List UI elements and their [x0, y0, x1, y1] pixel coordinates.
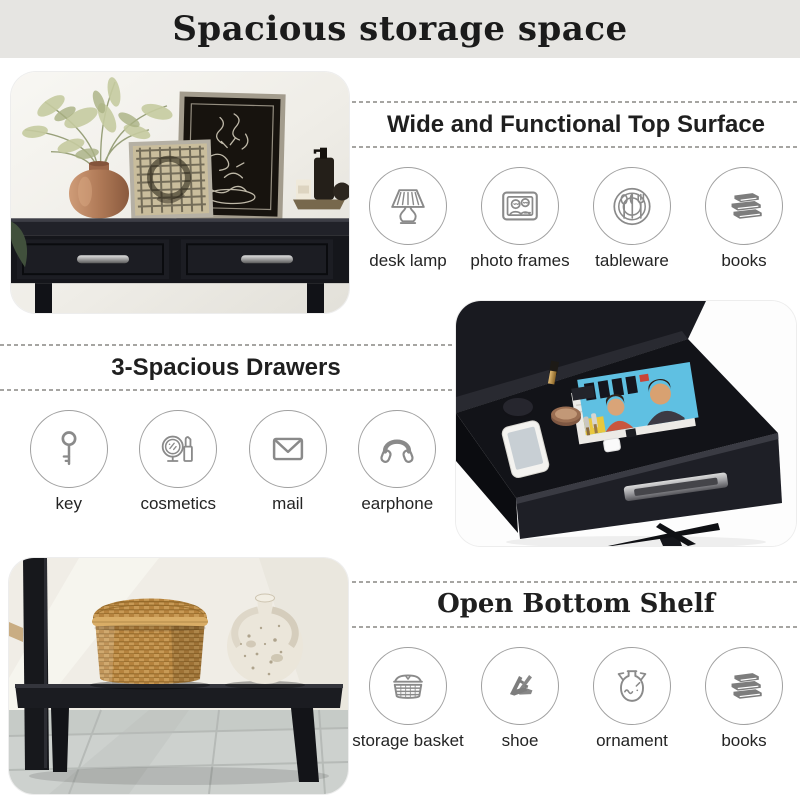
icon-circle	[481, 167, 559, 245]
bottom-shelf-illustration	[9, 558, 348, 794]
open-drawer-illustration	[456, 301, 796, 546]
page-title: Spacious storage space	[172, 9, 627, 49]
earphone-icon	[374, 426, 420, 472]
feature-item: shoe	[468, 647, 572, 751]
feature-item: photo frames	[468, 167, 572, 271]
icon-label: earphone	[361, 494, 433, 514]
storage-basket-icon	[385, 663, 431, 709]
feature-bottom-shelf: Open Bottom Shelf storage basket	[352, 581, 800, 751]
icon-row: key cosmetics	[0, 410, 452, 514]
icon-circle	[593, 647, 671, 725]
feature-heading: Wide and Functional Top Surface	[352, 103, 800, 146]
feature-item: mail	[236, 410, 340, 514]
desk-lamp-icon	[385, 183, 431, 229]
icon-label: mail	[272, 494, 303, 514]
icon-circle	[139, 410, 217, 488]
icon-label: books	[721, 731, 766, 751]
icon-circle	[30, 410, 108, 488]
title-bar: Spacious storage space	[0, 0, 800, 58]
icon-label: cosmetics	[140, 494, 216, 514]
open-drawer-photo	[455, 300, 797, 547]
feature-heading: Open Bottom Shelf	[352, 583, 800, 626]
icon-label: ornament	[596, 731, 668, 751]
feature-item: earphone	[345, 410, 449, 514]
feature-item: books	[692, 647, 796, 751]
icon-label: books	[721, 251, 766, 271]
product-infographic: Spacious storage space	[0, 0, 800, 800]
divider	[352, 146, 800, 148]
feature-item: desk lamp	[356, 167, 460, 271]
feature-item: cosmetics	[126, 410, 230, 514]
feature-item: key	[17, 410, 121, 514]
feature-item: tableware	[580, 167, 684, 271]
feature-item: books	[692, 167, 796, 271]
open-bottom-shelf-photo	[8, 557, 349, 795]
icon-label: tableware	[595, 251, 669, 271]
icon-circle	[705, 167, 783, 245]
icon-label: key	[56, 494, 82, 514]
console-top-illustration	[11, 72, 349, 313]
cosmetics-icon	[155, 426, 201, 472]
icon-label: photo frames	[470, 251, 569, 271]
icon-label: storage basket	[352, 731, 464, 751]
books-icon	[721, 663, 767, 709]
icon-row: storage basket shoe	[352, 647, 800, 751]
feature-drawers: 3-Spacious Drawers key	[0, 344, 452, 514]
console-table-top-photo	[10, 71, 350, 314]
feature-top-surface: Wide and Functional Top Surface desk lam…	[352, 101, 800, 271]
feature-item: storage basket	[356, 647, 460, 751]
divider	[0, 389, 452, 391]
ornament-icon	[609, 663, 655, 709]
icon-circle	[593, 167, 671, 245]
tableware-icon	[609, 183, 655, 229]
photo-frames-icon	[497, 183, 543, 229]
shoe-icon	[497, 663, 543, 709]
divider	[352, 626, 800, 628]
key-icon	[46, 426, 92, 472]
icon-circle	[481, 647, 559, 725]
icon-circle	[705, 647, 783, 725]
books-icon	[721, 183, 767, 229]
icon-row: desk lamp photo frames	[352, 167, 800, 271]
icon-label: desk lamp	[369, 251, 446, 271]
feature-item: ornament	[580, 647, 684, 751]
icon-circle	[249, 410, 327, 488]
feature-heading: 3-Spacious Drawers	[0, 346, 452, 389]
icon-label: shoe	[502, 731, 539, 751]
icon-circle	[369, 167, 447, 245]
mail-icon	[265, 426, 311, 472]
icon-circle	[369, 647, 447, 725]
icon-circle	[358, 410, 436, 488]
